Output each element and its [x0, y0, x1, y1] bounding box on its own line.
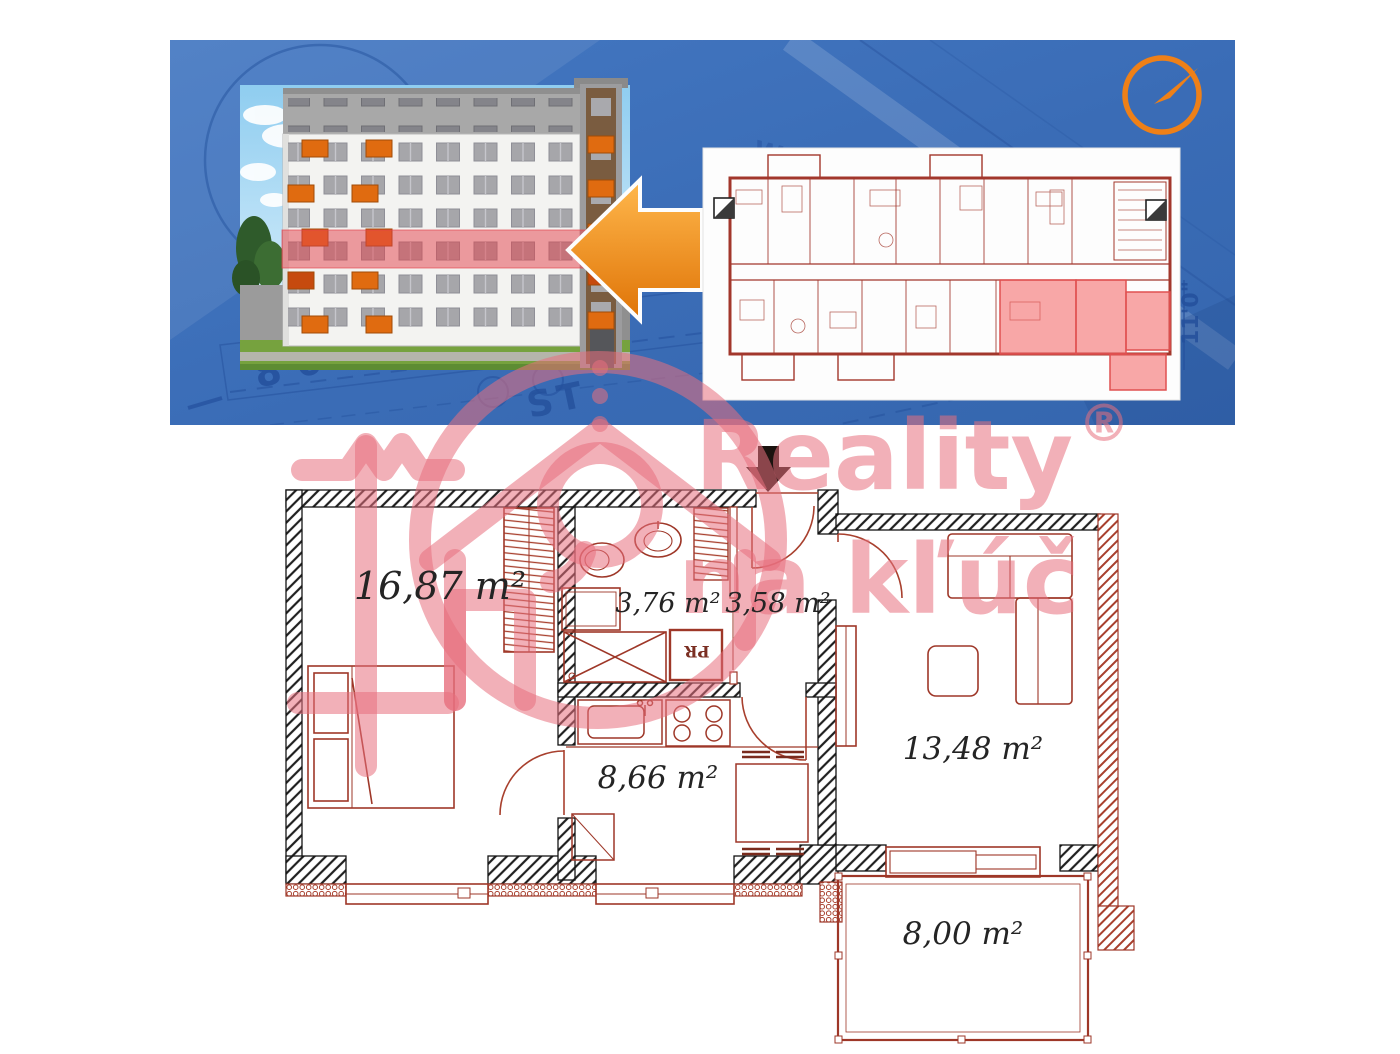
sofa-side [1016, 598, 1072, 704]
entrance-arrow-icon [746, 446, 791, 492]
room-area-label-kitchen: 8,66 m² [588, 760, 728, 796]
detail-floorplan [0, 0, 1400, 1050]
terrace-outline [835, 873, 1091, 1043]
chairs [742, 752, 804, 854]
room-area-label-living-room: 13,48 m² [888, 731, 1058, 767]
radiator [694, 508, 728, 580]
bedroom-furniture [308, 508, 554, 808]
stove [666, 700, 730, 746]
living-room-furniture [836, 534, 1072, 746]
coffee-table [928, 646, 978, 696]
room-area-label-hall: 3,58 m² [723, 588, 833, 619]
room-area-label-terrace: 8,00 m² [888, 916, 1038, 952]
pantry-label: PR [678, 642, 716, 661]
bed [308, 666, 454, 808]
toilet [580, 543, 624, 577]
room-area-label-bathroom: 3,76 m² [608, 588, 728, 619]
room-area-label-bedroom: 16,87 m² [330, 564, 550, 608]
dining-table [736, 764, 808, 842]
